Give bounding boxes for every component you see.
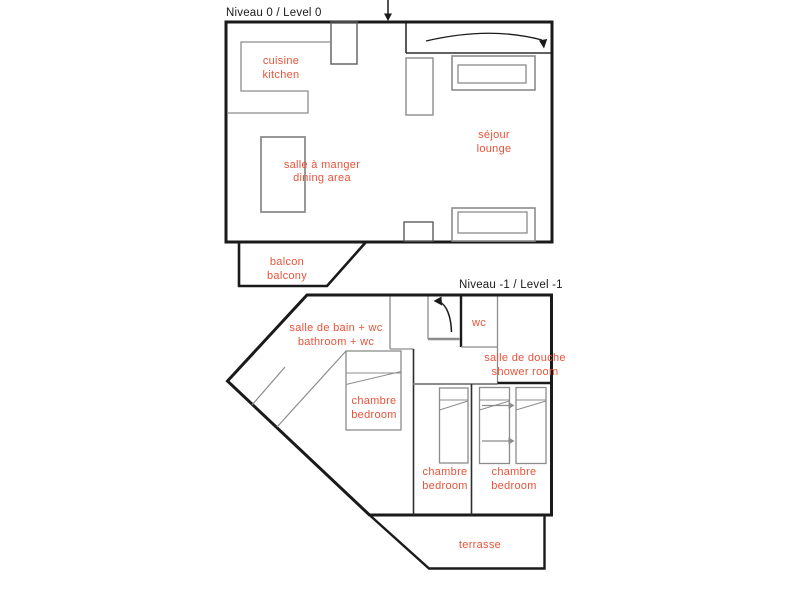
balcony-label-fr: balcon bbox=[270, 256, 304, 268]
stairs-up-arrow-head-icon bbox=[434, 297, 443, 306]
door-swing-arrow-head-icon bbox=[539, 39, 547, 49]
level-0-plan: Niveau 0 / Level 0 cuisine kitchen salle… bbox=[226, 0, 552, 286]
terrace-wall bbox=[370, 515, 545, 569]
bedroom-main-label-fr: chambre bbox=[352, 395, 397, 407]
level-minus-1-title: Niveau -1 / Level -1 bbox=[459, 279, 563, 291]
kitchen-label-en: kitchen bbox=[263, 69, 300, 81]
kitchen-label-fr: cuisine bbox=[263, 55, 299, 67]
level-minus-1-plan: Niveau -1 / Level -1 bbox=[228, 279, 566, 569]
slope-line-long bbox=[277, 351, 346, 427]
bed-right-2 bbox=[516, 388, 546, 464]
bathroom-label-fr: salle de bain + wc bbox=[289, 322, 382, 334]
terrace-label: terrasse bbox=[459, 539, 501, 551]
dining-label-en: dining area bbox=[293, 172, 351, 184]
bedroom-right-label-en: bedroom bbox=[491, 480, 537, 492]
fridge bbox=[331, 22, 357, 64]
door-swing-arrow bbox=[426, 33, 542, 41]
balcony-label-en: balcony bbox=[267, 270, 307, 282]
dining-label-fr: salle à manger bbox=[284, 159, 360, 171]
shower-label-fr: salle de douche bbox=[484, 352, 566, 364]
floor-plan-page: Niveau 0 / Level 0 cuisine kitchen salle… bbox=[0, 0, 800, 600]
bed-join-arrow-top-head-icon bbox=[509, 402, 515, 409]
bedroom-middle-label-fr: chambre bbox=[423, 466, 468, 478]
shower-label-en: shower room bbox=[492, 366, 559, 378]
entrance-arrow-head-icon bbox=[384, 14, 392, 22]
lounge-label-en: lounge bbox=[477, 143, 512, 155]
bedroom-right-label-fr: chambre bbox=[492, 466, 537, 478]
floor-plan-svg: Niveau 0 / Level 0 cuisine kitchen salle… bbox=[0, 0, 800, 600]
bed-join-arrow-bottom-head-icon bbox=[509, 438, 515, 445]
cabinet bbox=[404, 222, 433, 241]
bed-middle bbox=[440, 388, 469, 463]
bed-middle-sheet-line bbox=[440, 401, 469, 410]
stairs-up-arrow bbox=[439, 302, 452, 333]
lounge-label-fr: séjour bbox=[478, 129, 510, 141]
bedroom-middle-label-en: bedroom bbox=[422, 480, 468, 492]
level-0-title: Niveau 0 / Level 0 bbox=[226, 7, 322, 19]
wardrobe bbox=[406, 58, 433, 115]
sofa-bottom bbox=[452, 208, 535, 241]
sofa-top-cushion bbox=[458, 65, 526, 83]
bed-right-2-sheet-line bbox=[516, 401, 546, 410]
wc-label: wc bbox=[471, 317, 486, 329]
sofa-bottom-cushion bbox=[458, 212, 527, 233]
bathroom-label-en: bathroom + wc bbox=[298, 336, 375, 348]
bed-right-1 bbox=[480, 388, 510, 464]
sofa-top bbox=[452, 56, 535, 90]
bedroom-main-label-en: bedroom bbox=[351, 409, 397, 421]
slope-line-short bbox=[252, 367, 285, 405]
